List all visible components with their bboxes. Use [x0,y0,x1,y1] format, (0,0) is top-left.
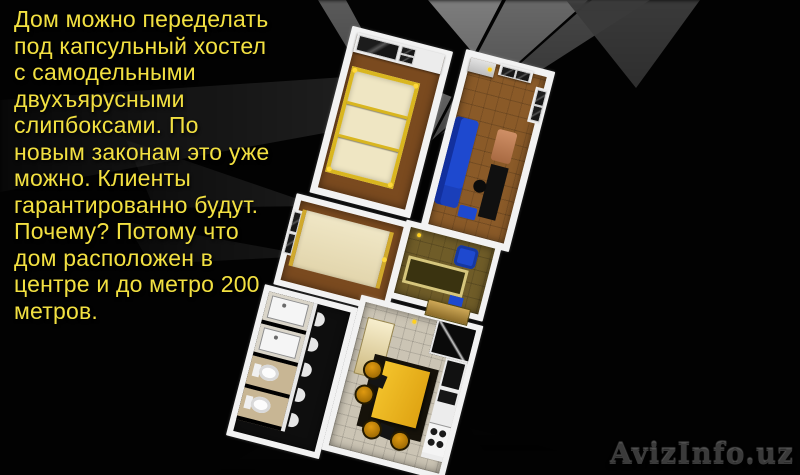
door-swing-icon [308,337,320,353]
bunk-bed [325,66,420,189]
ad-slide: Дом можно переделать под капсульный хост… [0,0,800,475]
window-icon [353,32,445,74]
ad-text: Дом можно переделать под капсульный хост… [14,6,276,324]
door-swing-icon [314,312,326,328]
door-swing-icon [288,413,300,429]
double-bed [288,209,394,289]
door-swing-icon [295,388,307,404]
door-swing-icon [301,363,313,379]
watermark-avizinfo: AvizInfo.uz [610,438,794,471]
